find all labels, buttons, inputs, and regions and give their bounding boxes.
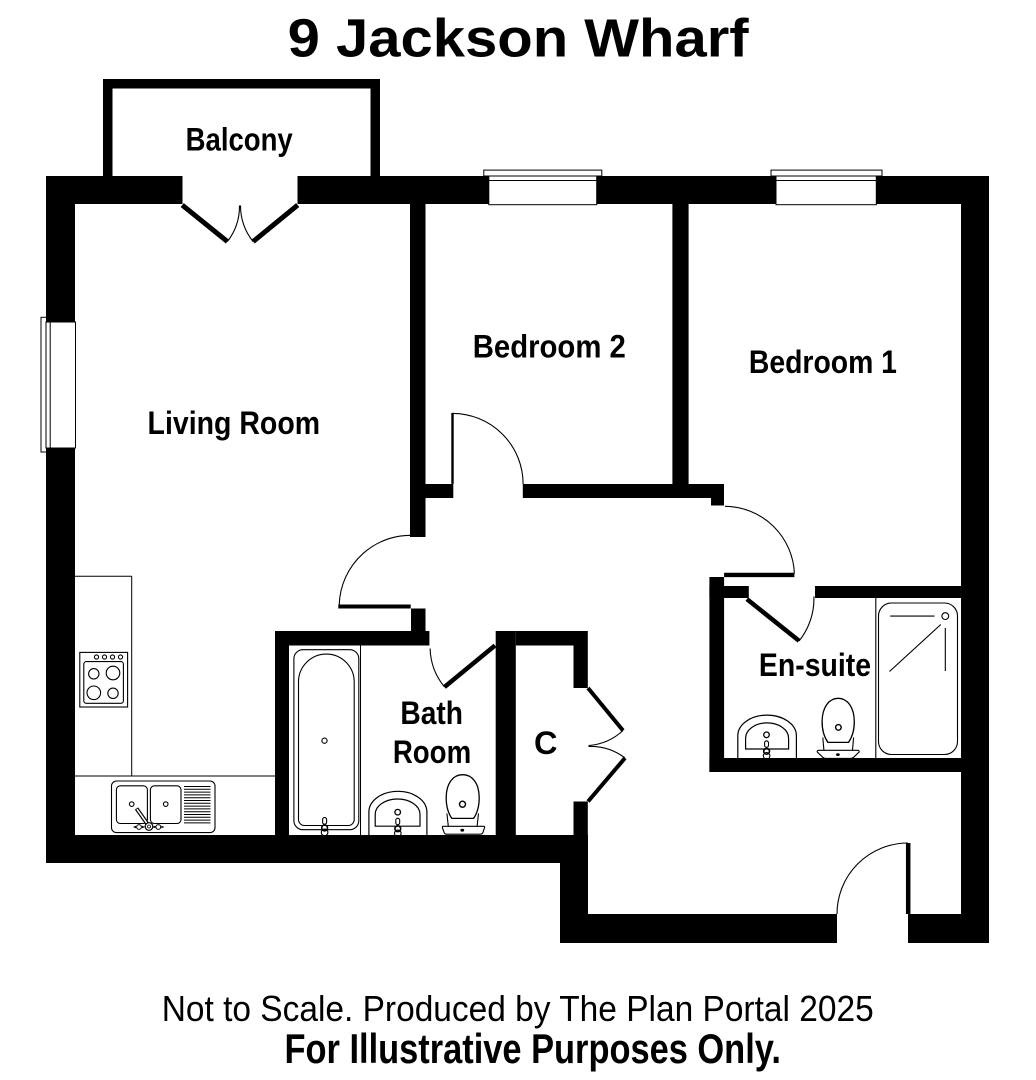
svg-text:En-suite: En-suite <box>759 647 871 683</box>
svg-text:For Illustrative Purposes Only: For Illustrative Purposes Only. <box>285 1025 781 1072</box>
svg-text:Bath: Bath <box>400 695 463 731</box>
svg-text:C: C <box>534 725 557 761</box>
svg-text:Bedroom 2: Bedroom 2 <box>473 329 626 365</box>
svg-text:Balcony: Balcony <box>186 122 293 158</box>
svg-text:Living Room: Living Room <box>148 405 321 441</box>
svg-text:Bedroom 1: Bedroom 1 <box>749 344 897 380</box>
svg-text:9 Jackson Wharf: 9 Jackson Wharf <box>288 8 750 68</box>
svg-text:Not to Scale. Produced by The: Not to Scale. Produced by The Plan Porta… <box>162 988 874 1029</box>
svg-text:Room: Room <box>393 734 471 770</box>
